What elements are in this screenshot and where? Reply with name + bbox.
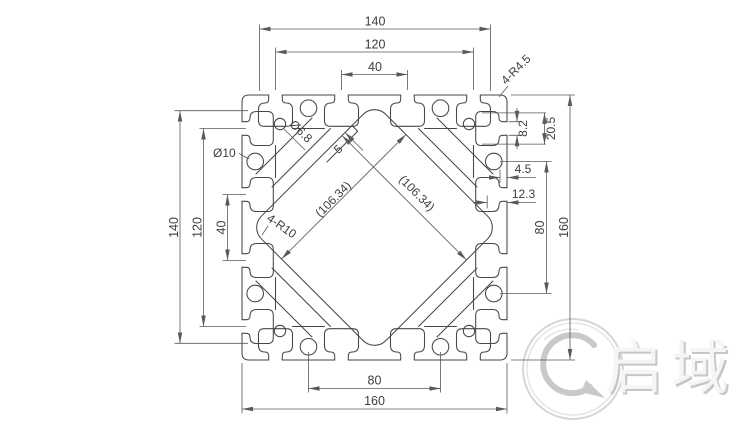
- dim-top-40: 40: [368, 60, 382, 74]
- label-corner-radius: 4-R4.5: [498, 52, 534, 88]
- large-hole-leader: [239, 154, 249, 160]
- dim-right-12-3: 12.3: [512, 187, 536, 201]
- dim-right-80: 80: [533, 221, 547, 235]
- label-large-hole: Ø10: [213, 146, 236, 160]
- dim-right-20-5: 20.5: [544, 116, 558, 140]
- dim-right-160: 160: [557, 217, 571, 238]
- profile-drawing-svg: 启域 启域: [0, 0, 751, 428]
- dim-right-8-2: 8.2: [516, 120, 530, 137]
- label-diagonal-left: (106.34): [312, 178, 354, 220]
- dim-bottom-80: 80: [368, 374, 382, 388]
- profile-edge-bottom: [249, 327, 500, 361]
- profile-edge-left: [242, 102, 276, 353]
- label-diagonal-right: (106.34): [396, 172, 438, 214]
- dim-left-40: 40: [215, 221, 229, 235]
- label-small-hole: Ø6.8: [287, 117, 316, 146]
- core-radius-leader: [262, 226, 268, 235]
- label-step-5: 5: [331, 142, 346, 157]
- logo-q-tail: [581, 380, 605, 398]
- dimension-lines: [175, 25, 576, 414]
- profile-edge-top: [249, 95, 500, 129]
- logo-text: 启域: [605, 336, 737, 401]
- drawing-canvas: 启域 启域: [0, 0, 751, 428]
- dim-left-140: 140: [167, 217, 181, 238]
- profile-edge-right: [474, 102, 508, 353]
- dim-top-140: 140: [365, 15, 386, 29]
- core-step-line: [327, 126, 358, 162]
- dim-left-120: 120: [191, 217, 205, 238]
- dim-right-4-5: 4.5: [515, 162, 532, 176]
- label-core-radius: 4-R10: [264, 211, 299, 241]
- dim-top-120: 120: [365, 38, 386, 52]
- logo-watermark: 启域 启域: [523, 319, 739, 419]
- dim-bottom-160: 160: [364, 394, 385, 408]
